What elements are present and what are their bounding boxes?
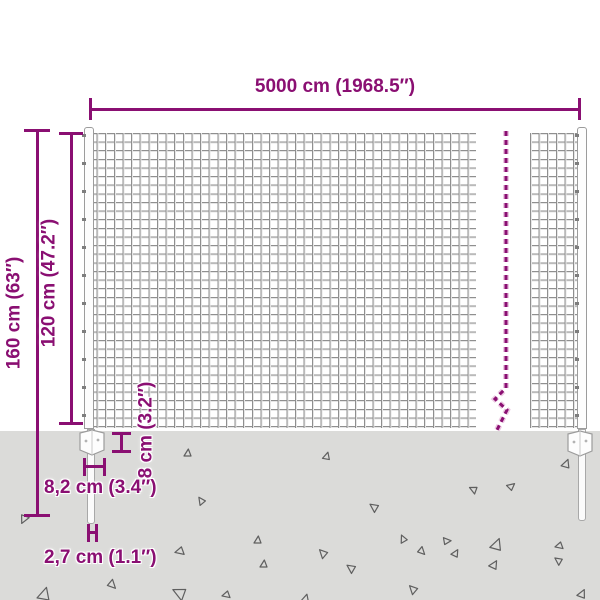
dim-cap-bottom xyxy=(24,514,50,517)
gravel-triangle-icon xyxy=(368,502,379,513)
dim-cap-top xyxy=(59,132,83,135)
gravel-triangle-icon xyxy=(221,591,230,600)
dim-line xyxy=(90,108,580,111)
fence-post-right xyxy=(577,127,587,429)
anchor-bracket-right-icon xyxy=(566,430,600,458)
gravel-triangle-icon xyxy=(398,534,408,544)
gravel-triangle-icon xyxy=(406,583,417,594)
post-clips-right xyxy=(575,134,579,419)
dim-line xyxy=(70,132,73,425)
gravel-triangle-icon xyxy=(443,536,451,544)
bracket-width-label: 8,2 cm (3.4″) xyxy=(44,478,157,497)
dim-cap-top xyxy=(24,129,50,132)
dim-cap-bottom xyxy=(112,450,131,453)
gravel-triangle-icon xyxy=(316,547,327,558)
gravel-triangle-icon xyxy=(468,485,477,494)
dim-tick-left xyxy=(89,98,92,120)
total-height-label: 160 cm (63″) xyxy=(5,257,24,370)
bottom-gap-label: 8 cm (3.2″) xyxy=(137,382,156,479)
gravel-triangle-icon xyxy=(170,585,185,600)
continuation-dashed-line xyxy=(480,125,520,435)
product-diagram: 5000 cm (1968.5″) 160 cm (63″) 120 cm (4… xyxy=(0,0,600,600)
gravel-triangle-icon xyxy=(345,563,356,574)
gravel-triangle-icon xyxy=(37,586,51,600)
dim-cap-right xyxy=(103,458,106,476)
mesh-panel-right xyxy=(530,133,579,428)
gravel-triangle-icon xyxy=(254,536,261,543)
gravel-triangle-icon xyxy=(577,588,587,598)
gravel-triangle-icon xyxy=(184,449,191,456)
gravel-triangle-icon xyxy=(418,547,428,557)
fence-post-left xyxy=(84,127,94,429)
gravel-triangle-icon xyxy=(507,481,517,491)
dim-cap-bottom xyxy=(59,422,83,425)
gravel-triangle-icon xyxy=(174,547,184,557)
dim-tick-right xyxy=(578,98,581,120)
gravel-triangle-icon xyxy=(489,559,500,570)
gravel-triangle-icon xyxy=(260,560,267,567)
gravel-triangle-icon xyxy=(451,548,460,557)
gravel-triangle-icon xyxy=(490,537,503,550)
total-width-label: 5000 cm (1968.5″) xyxy=(255,77,415,96)
mesh-height-label: 120 cm (47.2″) xyxy=(40,219,59,347)
gravel-triangle-icon xyxy=(107,579,118,590)
post-width-label: 2,7 cm (1.1″) xyxy=(44,548,157,567)
gravel-triangle-icon xyxy=(301,593,309,600)
gravel-triangle-icon xyxy=(553,556,563,566)
post-clips-left xyxy=(82,134,86,419)
dim-cap-right xyxy=(95,524,98,542)
gravel-triangle-icon xyxy=(554,542,563,551)
gravel-triangle-icon xyxy=(561,458,571,468)
gravel-triangle-icon xyxy=(322,451,330,459)
anchor-bracket-left-icon xyxy=(78,429,112,457)
gravel-triangle-icon xyxy=(196,496,206,506)
